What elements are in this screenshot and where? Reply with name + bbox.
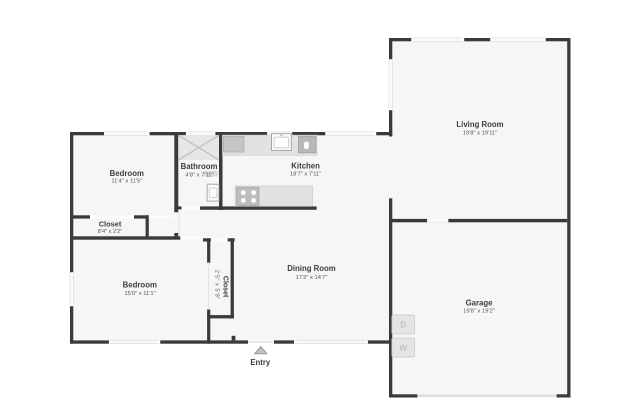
svg-text:Bathroom: Bathroom bbox=[181, 162, 218, 171]
svg-text:Bedroom: Bedroom bbox=[110, 169, 144, 178]
svg-text:15'0" x 11'1": 15'0" x 11'1" bbox=[124, 291, 155, 297]
svg-text:W: W bbox=[399, 344, 407, 353]
svg-text:8'4" x 2'2": 8'4" x 2'2" bbox=[98, 229, 122, 235]
svg-text:4'8" x 7'11": 4'8" x 7'11" bbox=[185, 172, 213, 178]
svg-text:D: D bbox=[400, 321, 406, 330]
svg-text:Kitchen: Kitchen bbox=[291, 162, 320, 171]
svg-text:19'8" x 19'2": 19'8" x 19'2" bbox=[463, 309, 495, 315]
svg-text:11'4" x 11'5": 11'4" x 11'5" bbox=[111, 179, 142, 185]
svg-text:Closet: Closet bbox=[221, 276, 228, 298]
svg-text:Living Room: Living Room bbox=[456, 120, 503, 129]
svg-text:Dining Room: Dining Room bbox=[287, 264, 336, 273]
svg-text:Closet: Closet bbox=[99, 220, 122, 229]
svg-text:Bedroom: Bedroom bbox=[123, 280, 157, 289]
svg-text:17'2" x 14'7": 17'2" x 14'7" bbox=[296, 275, 328, 281]
svg-text:Garage: Garage bbox=[466, 298, 494, 307]
svg-text:18'7" x 7'11": 18'7" x 7'11" bbox=[290, 172, 321, 178]
svg-text:19'8" x 19'11": 19'8" x 19'11" bbox=[463, 130, 498, 136]
svg-text:2'5" x 5'9": 2'5" x 5'9" bbox=[214, 270, 220, 300]
svg-text:Entry: Entry bbox=[250, 358, 271, 367]
